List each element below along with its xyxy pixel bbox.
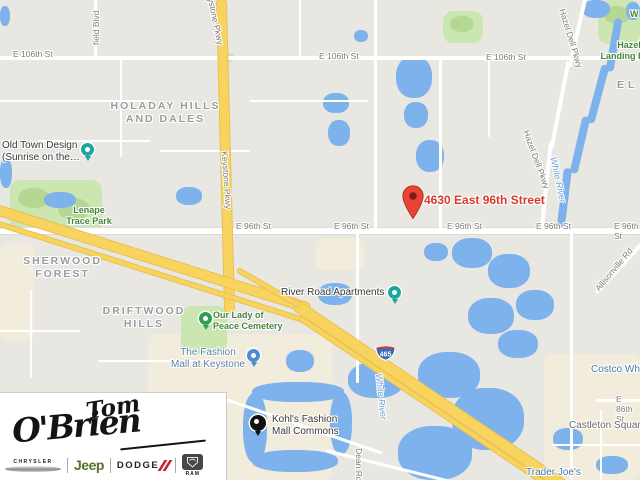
wetland <box>498 330 538 358</box>
interstate-465-shield-icon: 465 <box>375 343 396 366</box>
ram-logo: RAM <box>182 454 203 477</box>
pond <box>424 243 448 261</box>
park-label: W <box>630 9 639 20</box>
road <box>299 0 301 57</box>
park-label: Hazel Landing Park <box>574 40 640 62</box>
map-canvas[interactable]: 465 E 106th St E 106th St E 106th St E 9… <box>0 0 640 480</box>
shopping-pin-icon[interactable] <box>247 349 260 362</box>
wetland <box>516 290 554 320</box>
street-label: E 96th St <box>447 221 482 231</box>
pond <box>396 56 432 98</box>
street-label: E 106th St <box>319 51 359 61</box>
street-label: E 96th St <box>334 221 369 231</box>
divider <box>175 458 176 473</box>
white-river <box>570 116 591 174</box>
pond <box>176 187 202 205</box>
pond <box>323 93 349 113</box>
road <box>374 0 377 229</box>
brand-row: CHRYSLER Jeep DODGE RAM <box>5 452 203 478</box>
pond <box>328 120 350 146</box>
road <box>552 444 640 446</box>
white-river <box>586 64 609 124</box>
dodge-wordmark: DODGE <box>117 460 159 471</box>
neighborhood-label: HOLADAY HILLS AND DALES <box>98 100 233 125</box>
river-oxbow <box>252 382 344 402</box>
chrysler-wordmark: CHRYSLER <box>13 459 52 465</box>
dealer-logo: Tom O'Brien CHRYSLER Jeep DODGE <box>0 392 227 480</box>
chrysler-logo: CHRYSLER <box>5 459 61 472</box>
neighborhood-label: SHERWOOD FOREST <box>10 255 115 280</box>
chrysler-wing-icon <box>5 466 61 472</box>
street-label: E 106th St <box>13 49 53 59</box>
place-pin-icon[interactable] <box>81 143 94 156</box>
poi-label-fashion-mall: The Fashion Mall at Keystone <box>168 347 248 371</box>
dodge-logo: DODGE <box>117 460 169 471</box>
trees <box>450 16 474 32</box>
jeep-wordmark: Jeep <box>74 457 104 473</box>
ram-wordmark: RAM <box>186 471 200 477</box>
street-label: E 106th St <box>486 52 526 62</box>
poi-label-costco: Costco Wholesale <box>591 364 640 376</box>
divider <box>67 458 68 473</box>
ram-head-icon <box>182 454 203 470</box>
pond <box>354 30 368 42</box>
street-label: Dean Rd <box>354 448 364 480</box>
park-label: Lenape Trace Park <box>38 205 140 227</box>
poi-label-old-town-design: Old Town Design (Sunrise on the… <box>2 140 86 164</box>
location-marker-icon[interactable] <box>402 185 424 225</box>
divider <box>110 458 111 473</box>
svg-text:465: 465 <box>380 352 392 359</box>
pond <box>286 350 314 372</box>
dealer-name-last: O'Brien <box>11 401 142 451</box>
poi-label-trader-joes: Trader Joe's <box>526 467 581 479</box>
road <box>250 100 368 102</box>
poi-label-river-road-apartments: River Road Apartments <box>281 287 384 299</box>
street-label: E 96th St <box>236 221 271 231</box>
wetland <box>452 238 492 268</box>
pond <box>404 102 428 128</box>
road <box>160 150 250 152</box>
road <box>30 290 32 378</box>
cemetery-pin-icon[interactable] <box>199 312 212 325</box>
river-oxbow <box>252 450 338 472</box>
signature-flourish <box>120 440 206 451</box>
kohls-logo-pin-icon[interactable] <box>250 415 266 431</box>
street-label: field Blvd <box>91 0 101 45</box>
road-hazel-dell-pkwy <box>549 60 570 149</box>
park-label: Our Lady of Peace Cemetery <box>213 310 305 332</box>
wetland <box>488 254 530 288</box>
neighborhood-label: DRIFTWOOD HILLS <box>90 305 198 330</box>
marker-address-label: 4630 East 96th Street <box>424 193 545 207</box>
wetland <box>468 298 514 334</box>
road <box>488 57 490 137</box>
place-pin-icon[interactable] <box>388 286 401 299</box>
poi-label-kohls: Kohl's Fashion Mall Commons <box>272 414 360 438</box>
road <box>0 330 80 332</box>
neighborhood-label: EL <box>617 79 638 92</box>
poi-label-castleton-square: Castleton Square <box>569 420 640 432</box>
pond <box>0 6 10 26</box>
road <box>570 233 573 480</box>
